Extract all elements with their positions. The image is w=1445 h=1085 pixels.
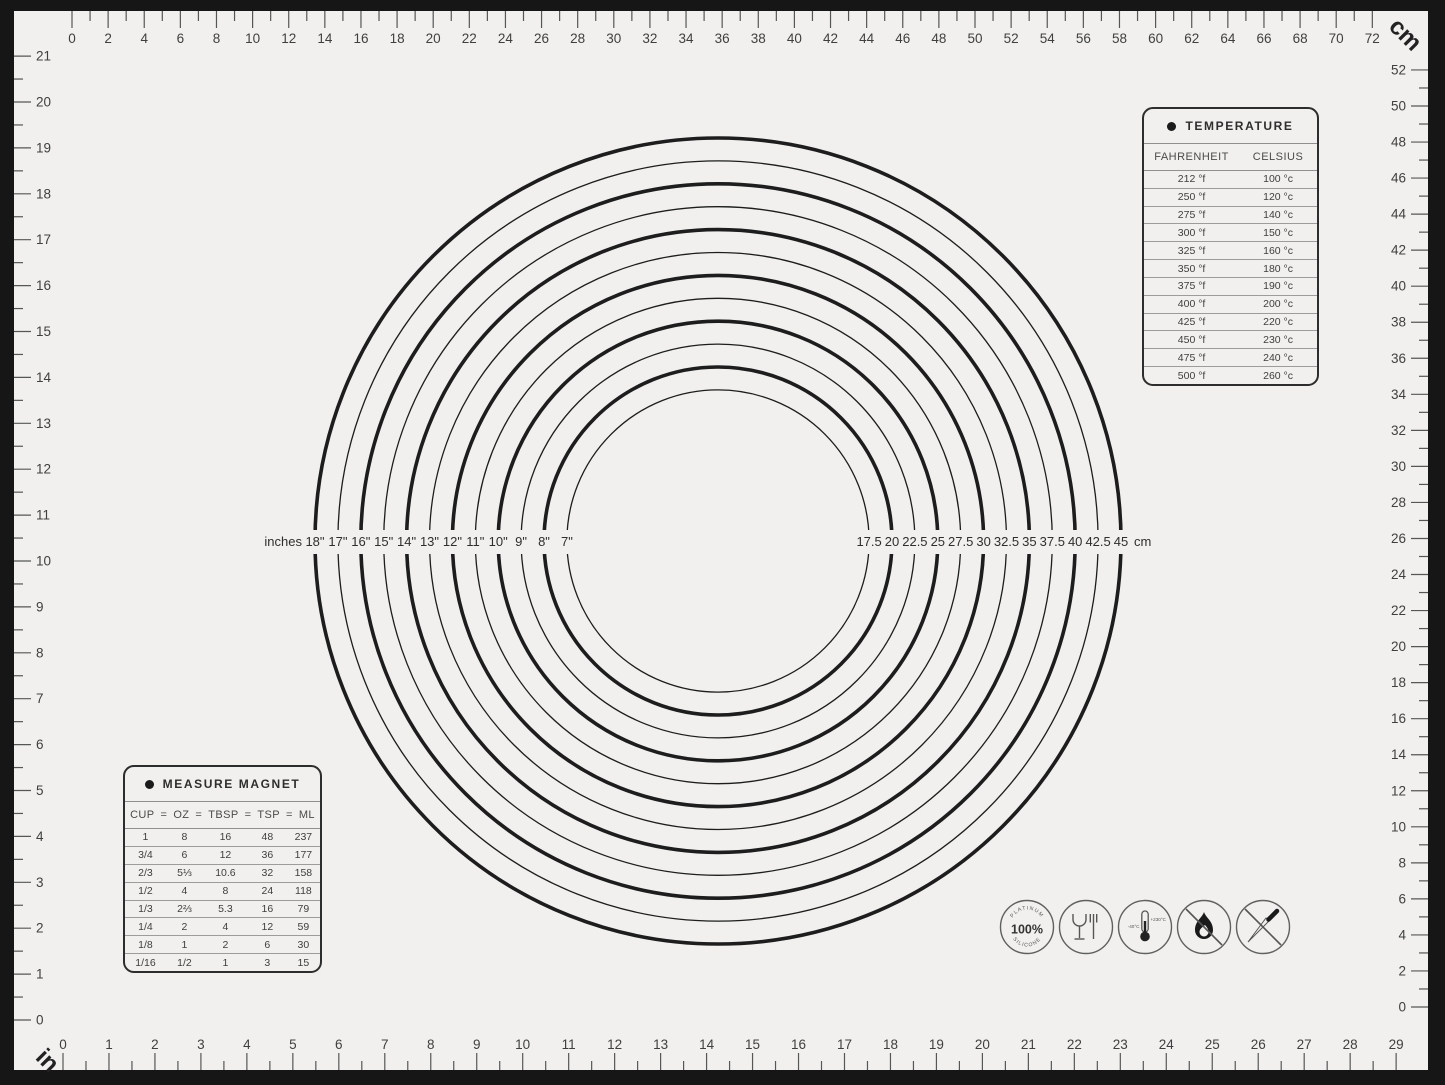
ruler-number: 50 <box>1391 99 1406 114</box>
ruler-number: 12 <box>607 1037 622 1052</box>
tsp-value: 48 <box>248 831 287 843</box>
ruler-number: 16 <box>791 1037 806 1052</box>
ruler-number: 9 <box>473 1037 481 1052</box>
fahrenheit-value: 300 °f <box>1144 227 1239 239</box>
hundred-percent-text: 100% <box>1011 923 1043 937</box>
ruler-number: 50 <box>967 31 982 46</box>
equals-separator: = <box>161 809 168 821</box>
ruler-number: 5 <box>36 783 44 798</box>
tsp-value: 32 <box>248 867 287 879</box>
ruler-number: 9 <box>36 599 44 614</box>
ml-value: 79 <box>287 903 320 915</box>
fahrenheit-value: 450 °f <box>1144 334 1239 346</box>
measure-header: CUP=OZ=TBSP=TSP=ML <box>125 802 320 829</box>
ruler-number: 16 <box>1391 711 1406 726</box>
temperature-row: 475 °f240 °c <box>1144 349 1317 367</box>
inches-unit-label: inches <box>264 534 302 549</box>
ruler-number: 68 <box>1293 31 1308 46</box>
ruler-number: 1 <box>105 1037 113 1052</box>
tbsp-value: 12 <box>203 849 248 861</box>
tsp-value: 3 <box>248 957 287 969</box>
fahrenheit-value: 250 °f <box>1144 191 1239 203</box>
temperature-row: 425 °f220 °c <box>1144 314 1317 332</box>
cup-value: 2/3 <box>125 867 166 879</box>
circle-cm-label: 32.5 <box>994 534 1019 549</box>
temperature-row: 250 °f120 °c <box>1144 189 1317 207</box>
ruler-number: 64 <box>1220 31 1236 46</box>
ruler-number: 3 <box>36 875 44 890</box>
fahrenheit-value: 475 °f <box>1144 352 1239 364</box>
oz-value: 2 <box>166 921 203 933</box>
ruler-number: 18 <box>36 186 51 201</box>
circle-inch-label: 15" <box>374 534 393 549</box>
ruler-number: 10 <box>515 1037 530 1052</box>
ruler-number: 54 <box>1040 31 1056 46</box>
ruler-number: 13 <box>653 1037 668 1052</box>
fahrenheit-value: 400 °f <box>1144 298 1239 310</box>
ruler-number: 12 <box>36 462 51 477</box>
tbsp-value: 4 <box>203 921 248 933</box>
measure-row: 2/35⅓10.632158 <box>125 865 320 883</box>
ruler-number: 21 <box>36 49 51 64</box>
ruler-number: 17 <box>36 232 51 247</box>
ruler-number: 62 <box>1184 31 1199 46</box>
cup-value: 1/2 <box>125 885 166 897</box>
ruler-number: 6 <box>335 1037 343 1052</box>
ruler-number: 44 <box>859 31 875 46</box>
oz-value: 1 <box>166 939 203 951</box>
ruler-number: 42 <box>823 31 838 46</box>
ruler-number: 24 <box>498 31 514 46</box>
oz-value: 6 <box>166 849 203 861</box>
celsius-value: 120 °c <box>1239 191 1317 203</box>
ruler-number: 24 <box>1391 567 1407 582</box>
fahrenheit-value: 350 °f <box>1144 263 1239 275</box>
ml-value: 177 <box>287 849 320 861</box>
ruler-number: 24 <box>1159 1037 1175 1052</box>
ruler-number: 20 <box>426 31 441 46</box>
temperature-row: 212 °f100 °c <box>1144 171 1317 189</box>
ruler-number: 20 <box>36 95 51 110</box>
ruler-number: 14 <box>317 31 333 46</box>
temperature-row: 375 °f190 °c <box>1144 278 1317 296</box>
ruler-number: 4 <box>36 829 44 844</box>
ruler-number: 11 <box>36 508 50 523</box>
temperature-row: 350 °f180 °c <box>1144 260 1317 278</box>
celsius-value: 180 °c <box>1239 263 1317 275</box>
circle-inch-label: 8" <box>538 534 550 549</box>
celsius-value: 240 °c <box>1239 352 1317 364</box>
circle-cm-label: 45 <box>1114 534 1128 549</box>
ml-value: 158 <box>287 867 320 879</box>
measure-row: 1/24824118 <box>125 883 320 901</box>
celsius-value: 220 °c <box>1239 316 1317 328</box>
circle-cm-label: 17.5 <box>856 534 881 549</box>
ruler-number: 28 <box>1391 495 1406 510</box>
ruler-number: 16 <box>353 31 368 46</box>
circle-inch-label: 14" <box>397 534 416 549</box>
ruler-number: 0 <box>68 31 76 46</box>
ruler-number: 29 <box>1389 1037 1404 1052</box>
ruler-number: 8 <box>36 645 44 660</box>
ruler-number: 16 <box>36 278 51 293</box>
celsius-value: 200 °c <box>1239 298 1317 310</box>
tbsp-value: 16 <box>203 831 248 843</box>
ruler-number: 0 <box>59 1037 67 1052</box>
ruler-number: 6 <box>177 31 185 46</box>
ml-value: 118 <box>287 885 320 897</box>
ruler-number: 1 <box>36 967 44 982</box>
temperature-panel: TEMPERATURE FAHRENHEIT CELSIUS 212 °f100… <box>1142 107 1319 386</box>
temperature-row: 275 °f140 °c <box>1144 207 1317 225</box>
ruler-number: 42 <box>1391 243 1406 258</box>
ruler-number: 30 <box>1391 459 1406 474</box>
ruler-number: 34 <box>1391 387 1407 402</box>
ruler-number: 6 <box>1398 891 1406 906</box>
ruler-number: 72 <box>1365 31 1380 46</box>
measure-column-header: TBSP <box>208 809 238 821</box>
circle-inch-label: 9" <box>515 534 527 549</box>
ruler-number: 60 <box>1148 31 1163 46</box>
ruler-number: 46 <box>895 31 910 46</box>
circle-cm-label: 27.5 <box>948 534 973 549</box>
ruler-number: 0 <box>36 1013 44 1028</box>
cup-value: 1 <box>125 831 166 843</box>
tsp-value: 24 <box>248 885 287 897</box>
ruler-number: 21 <box>1021 1037 1036 1052</box>
ruler-number: 34 <box>679 31 695 46</box>
temperature-row: 300 °f150 °c <box>1144 224 1317 242</box>
ruler-number: 40 <box>1391 279 1406 294</box>
ruler-number: 22 <box>462 31 477 46</box>
circle-cm-label: 20 <box>885 534 899 549</box>
tsp-value: 12 <box>248 921 287 933</box>
celsius-value: 140 °c <box>1239 209 1317 221</box>
ruler-number: 4 <box>243 1037 251 1052</box>
temperature-row: 325 °f160 °c <box>1144 242 1317 260</box>
ruler-number: 6 <box>36 737 44 752</box>
ruler-number: 58 <box>1112 31 1127 46</box>
tbsp-value: 8 <box>203 885 248 897</box>
cup-value: 1/16 <box>125 957 166 969</box>
ruler-number: 12 <box>281 31 296 46</box>
ruler-number: 56 <box>1076 31 1091 46</box>
bullet-icon <box>1167 122 1176 131</box>
tsp-value: 6 <box>248 939 287 951</box>
celsius-column-header: CELSIUS <box>1239 151 1317 163</box>
bullet-icon <box>145 780 154 789</box>
measure-row: 1/4241259 <box>125 918 320 936</box>
measure-row: 1/32⅔5.31679 <box>125 901 320 919</box>
ruler-number: 19 <box>929 1037 944 1052</box>
circle-cm-label: 42.5 <box>1085 534 1110 549</box>
ruler-number: 2 <box>1398 963 1406 978</box>
circle-inch-label: 11" <box>466 534 484 549</box>
ruler-number: 15 <box>36 324 51 339</box>
ruler-number: 7 <box>381 1037 389 1052</box>
tsp-value: 16 <box>248 903 287 915</box>
tbsp-value: 5.3 <box>203 903 248 915</box>
ruler-number: 22 <box>1067 1037 1082 1052</box>
celsius-value: 230 °c <box>1239 334 1317 346</box>
fahrenheit-value: 375 °f <box>1144 280 1239 292</box>
fahrenheit-value: 275 °f <box>1144 209 1239 221</box>
ruler-number: 52 <box>1391 62 1406 77</box>
measure-row: 181648237 <box>125 829 320 847</box>
circle-inch-label: 10" <box>489 534 508 549</box>
fahrenheit-value: 425 °f <box>1144 316 1239 328</box>
celsius-value: 150 °c <box>1239 227 1317 239</box>
ruler-number: 20 <box>1391 639 1406 654</box>
cup-value: 1/4 <box>125 921 166 933</box>
ml-value: 30 <box>287 939 320 951</box>
circle-cm-label: 35 <box>1022 534 1036 549</box>
ruler-number: 30 <box>606 31 621 46</box>
ruler-number: 14 <box>699 1037 715 1052</box>
measure-row: 1/161/21315 <box>125 954 320 971</box>
tbsp-value: 2 <box>203 939 248 951</box>
celsius-value: 190 °c <box>1239 280 1317 292</box>
oz-value: 4 <box>166 885 203 897</box>
measure-column-header: TSP <box>257 809 280 821</box>
temp-min-text: -40°C <box>1128 924 1140 929</box>
ruler-number: 8 <box>1398 855 1406 870</box>
temperature-rows: 212 °f100 °c250 °f120 °c275 °f140 °c300 … <box>1144 171 1317 384</box>
ruler-number: 38 <box>1391 315 1406 330</box>
cm-word-label: cm <box>1134 534 1151 549</box>
ruler-number: 18 <box>1391 675 1406 690</box>
ruler-number: 8 <box>213 31 221 46</box>
ruler-number: 2 <box>104 31 112 46</box>
ruler-number: 0 <box>1398 1000 1406 1015</box>
measure-rows: 1816482373/4612361772/35⅓10.6321581/2482… <box>125 829 320 971</box>
ruler-number: 48 <box>1391 135 1406 150</box>
measure-magnet-panel: MEASURE MAGNET CUP=OZ=TBSP=TSP=ML 181648… <box>123 765 322 973</box>
fahrenheit-value: 212 °f <box>1144 173 1239 185</box>
ruler-number: 27 <box>1297 1037 1312 1052</box>
ruler-number: 11 <box>562 1037 576 1052</box>
ruler-number: 44 <box>1391 207 1407 222</box>
circle-inch-label: 12" <box>443 534 462 549</box>
circle-cm-label: 22.5 <box>902 534 927 549</box>
equals-separator: = <box>195 809 202 821</box>
temperature-row: 500 °f260 °c <box>1144 367 1317 384</box>
ml-value: 15 <box>287 957 320 969</box>
oz-value: 5⅓ <box>166 867 203 879</box>
fahrenheit-column-header: FAHRENHEIT <box>1144 151 1239 163</box>
circle-inch-label: 18" <box>305 534 324 549</box>
ml-value: 59 <box>287 921 320 933</box>
ruler-number: 10 <box>245 31 260 46</box>
equals-separator: = <box>245 809 252 821</box>
ruler-number: 26 <box>1391 531 1406 546</box>
measure-column-header: OZ <box>173 809 189 821</box>
oz-value: 8 <box>166 831 203 843</box>
ruler-number: 28 <box>1343 1037 1358 1052</box>
oz-value: 1/2 <box>166 957 203 969</box>
ruler-number: 10 <box>36 554 51 569</box>
measure-title-label: MEASURE MAGNET <box>163 777 301 791</box>
circle-inch-label: 16" <box>351 534 370 549</box>
ruler-number: 26 <box>534 31 549 46</box>
ruler-number: 38 <box>751 31 766 46</box>
ruler-number: 15 <box>745 1037 760 1052</box>
tbsp-value: 1 <box>203 957 248 969</box>
ruler-number: 36 <box>715 31 730 46</box>
ruler-number: 52 <box>1004 31 1019 46</box>
ruler-number: 8 <box>427 1037 435 1052</box>
ruler-number: 28 <box>570 31 585 46</box>
fahrenheit-value: 500 °f <box>1144 370 1239 382</box>
ruler-number: 3 <box>197 1037 205 1052</box>
ruler-number: 48 <box>931 31 946 46</box>
circle-inch-label: 17" <box>328 534 347 549</box>
ruler-number: 17 <box>837 1037 852 1052</box>
circle-cm-label: 30 <box>976 534 990 549</box>
ruler-number: 22 <box>1391 603 1406 618</box>
equals-separator: = <box>286 809 293 821</box>
measure-row: 1/812630 <box>125 936 320 954</box>
ruler-number: 18 <box>883 1037 898 1052</box>
circle-cm-label: 25 <box>931 534 945 549</box>
measure-column-header: CUP <box>130 809 154 821</box>
cup-value: 3/4 <box>125 849 166 861</box>
tbsp-value: 10.6 <box>203 867 248 879</box>
ruler-number: 46 <box>1391 171 1406 186</box>
celsius-value: 100 °c <box>1239 173 1317 185</box>
temperature-panel-title: TEMPERATURE <box>1144 109 1317 144</box>
circle-inch-label: 7" <box>561 534 573 549</box>
ruler-number: 36 <box>1391 351 1406 366</box>
ruler-number: 23 <box>1113 1037 1128 1052</box>
ruler-number: 26 <box>1251 1037 1266 1052</box>
circle-cm-label: 40 <box>1068 534 1082 549</box>
ruler-number: 2 <box>151 1037 159 1052</box>
ruler-number: 18 <box>390 31 405 46</box>
tsp-value: 36 <box>248 849 287 861</box>
ruler-number: 19 <box>36 140 51 155</box>
temp-max-text: +230°C <box>1151 917 1167 922</box>
ruler-number: 4 <box>1398 927 1406 942</box>
ruler-number: 5 <box>289 1037 297 1052</box>
ruler-number: 25 <box>1205 1037 1220 1052</box>
temperature-header: FAHRENHEIT CELSIUS <box>1144 144 1317 171</box>
circle-cm-label: 37.5 <box>1040 534 1065 549</box>
ruler-number: 4 <box>140 31 148 46</box>
temperature-row: 450 °f230 °c <box>1144 331 1317 349</box>
fahrenheit-value: 325 °f <box>1144 245 1239 257</box>
ruler-number: 7 <box>36 691 44 706</box>
cup-value: 1/8 <box>125 939 166 951</box>
ruler-number: 2 <box>36 921 44 936</box>
cup-value: 1/3 <box>125 903 166 915</box>
ruler-number: 20 <box>975 1037 990 1052</box>
ruler-number: 66 <box>1256 31 1271 46</box>
ruler-number: 12 <box>1391 783 1406 798</box>
ruler-number: 13 <box>36 416 51 431</box>
ml-value: 237 <box>287 831 320 843</box>
ruler-number: 40 <box>787 31 802 46</box>
ruler-number: 14 <box>1391 747 1407 762</box>
measure-row: 3/461236177 <box>125 847 320 865</box>
temperature-title-label: TEMPERATURE <box>1185 119 1293 133</box>
circle-inch-label: 13" <box>420 534 439 549</box>
temperature-row: 400 °f200 °c <box>1144 296 1317 314</box>
ruler-number: 10 <box>1391 819 1406 834</box>
oz-value: 2⅔ <box>166 903 203 915</box>
celsius-value: 160 °c <box>1239 245 1317 257</box>
ruler-number: 70 <box>1329 31 1344 46</box>
pastry-mat: 0246810121416182022242628303234363840424… <box>0 0 1445 1085</box>
ruler-number: 32 <box>642 31 657 46</box>
measure-column-header: ML <box>299 809 315 821</box>
ruler-number: 32 <box>1391 423 1406 438</box>
ruler-number: 14 <box>36 370 52 385</box>
celsius-value: 260 °c <box>1239 370 1317 382</box>
measure-panel-title: MEASURE MAGNET <box>125 767 320 802</box>
